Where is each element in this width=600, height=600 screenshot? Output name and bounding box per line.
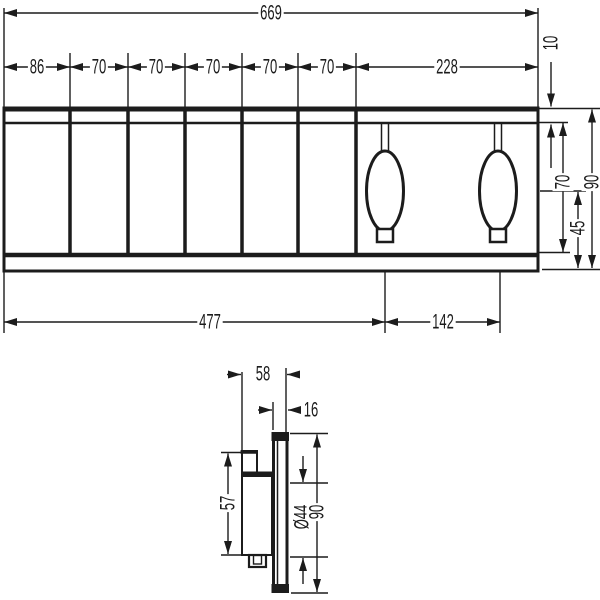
dimension-drawing: 669 86 70 70 70 70 70 228 10 70 45 90 47… xyxy=(0,0,600,600)
dim-segment-70-1: 70 xyxy=(90,57,108,78)
dim-total-height: 90 xyxy=(582,173,600,191)
front-view-plate xyxy=(3,108,539,271)
dim-overall-width: 669 xyxy=(258,3,283,24)
dim-segment-228: 228 xyxy=(434,57,459,78)
dim-knob-spacing: 142 xyxy=(430,312,455,333)
dim-segment-70-4: 70 xyxy=(261,57,279,78)
dim-plate-height: 90 xyxy=(307,503,328,521)
dim-inner-height: 70 xyxy=(553,173,574,191)
block-main xyxy=(242,475,272,555)
dim-total-depth: 58 xyxy=(254,364,272,385)
dim-center-bottom: 45 xyxy=(568,219,589,237)
side-view-body xyxy=(241,432,290,593)
dim-segment-86: 86 xyxy=(28,57,46,78)
dim-segment-70-3: 70 xyxy=(204,57,222,78)
dim-top-offset: 10 xyxy=(541,34,562,52)
dim-segment-70-5: 70 xyxy=(318,57,336,78)
plate-section xyxy=(272,432,290,593)
dim-block-height: 57 xyxy=(218,494,239,512)
dim-segment-70-2: 70 xyxy=(147,57,165,78)
block-step xyxy=(242,451,257,475)
dim-left-knob: 477 xyxy=(197,312,222,333)
dim-plate-depth: 16 xyxy=(302,400,320,421)
